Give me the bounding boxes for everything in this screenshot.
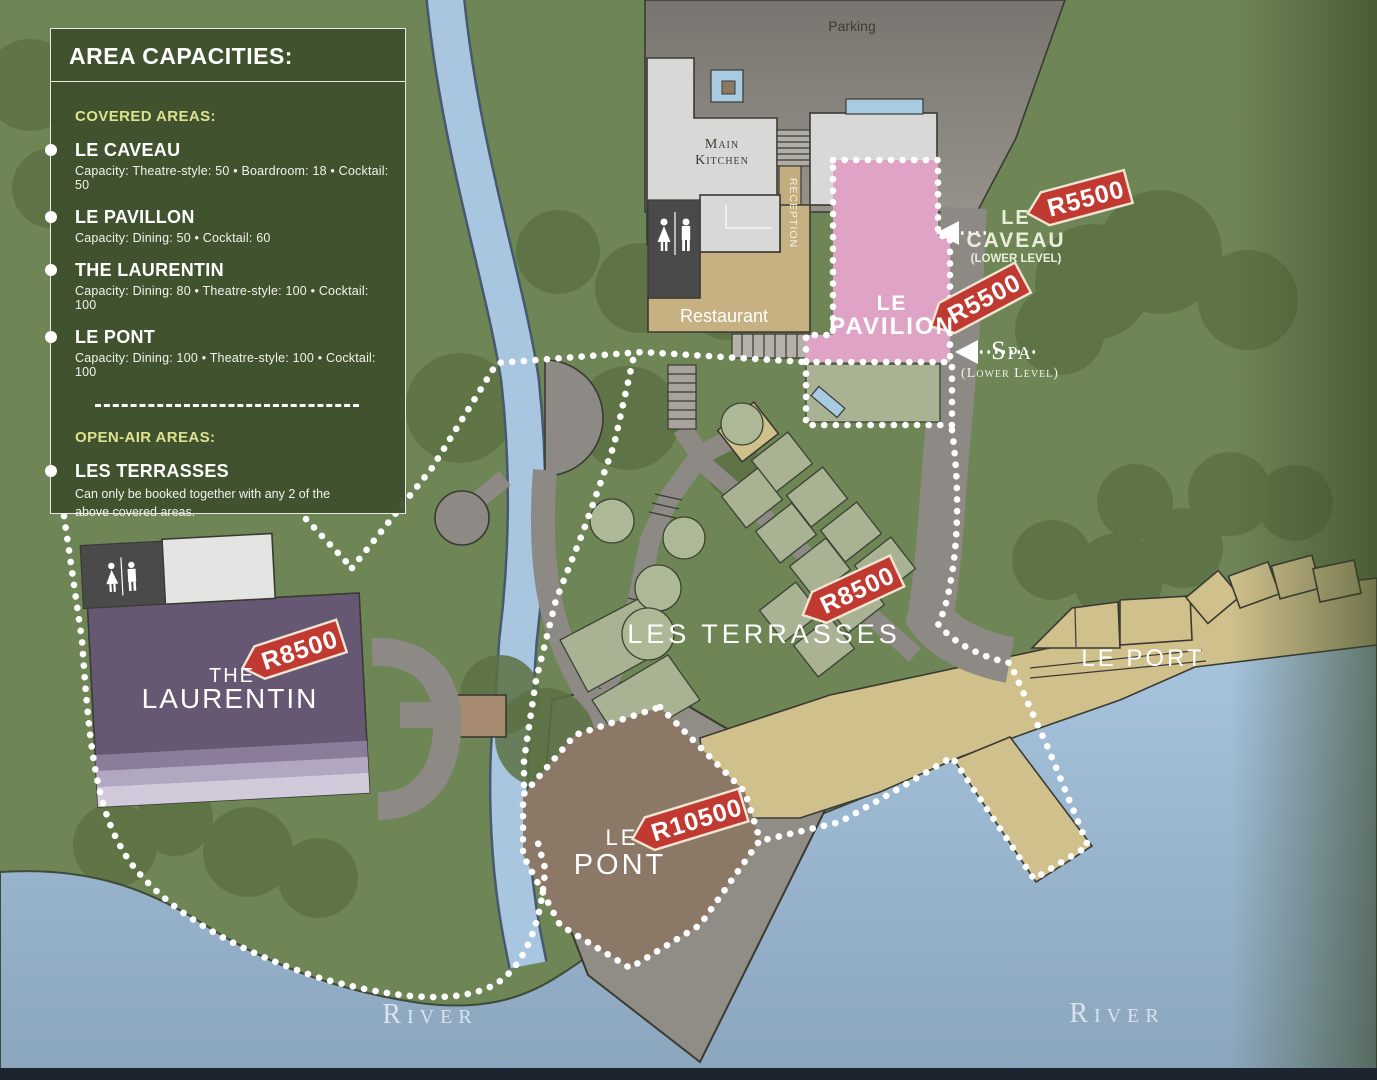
awning <box>846 99 923 114</box>
area-capacities-panel: AREA CAPACITIES: COVERED AREAS: LE CAVEA… <box>50 28 406 514</box>
bullet-icon <box>45 144 57 156</box>
restaurant-label: Restaurant <box>680 306 768 326</box>
restaurant-restrooms <box>648 200 700 298</box>
area-name: LE CAVEAU <box>75 140 389 161</box>
svg-text:LE: LE <box>606 825 639 850</box>
bullet-icon <box>45 264 57 276</box>
svg-text:Main: Main <box>705 137 739 152</box>
note-line-2: above covered areas. <box>75 503 389 521</box>
area-capacity: Capacity: Dining: 80 • Theatre-style: 10… <box>75 284 389 312</box>
svg-text:LAURENTIN: LAURENTIN <box>142 683 319 714</box>
legend-item-le-pavillon: LE PAVILLON Capacity: Dining: 50 • Cockt… <box>75 207 389 245</box>
legend-item-the-laurentin: THE LAURENTIN Capacity: Dining: 80 • The… <box>75 260 389 312</box>
svg-text:(Lower Level): (Lower Level) <box>961 366 1059 381</box>
note-line-1: Can only be booked together with any 2 o… <box>75 485 389 503</box>
legend-item-le-caveau: LE CAVEAU Capacity: Theatre-style: 50 • … <box>75 140 389 192</box>
svg-text:CAVEAU: CAVEAU <box>966 229 1065 252</box>
legend-item-le-pont: LE PONT Capacity: Dining: 100 • Theatre-… <box>75 327 389 379</box>
area-name: LE PONT <box>75 327 389 348</box>
les-terrasses-label: LES TERRASSES <box>627 619 901 649</box>
area-capacity: Capacity: Theatre-style: 50 • Boardroom:… <box>75 164 389 192</box>
svg-text:PONT: PONT <box>574 849 667 881</box>
svg-text:(LOWER LEVEL): (LOWER LEVEL) <box>971 253 1062 265</box>
river-label-right: River <box>1069 998 1164 1029</box>
bullet-icon <box>45 331 57 343</box>
area-name: LES TERRASSES <box>75 461 389 482</box>
port-hut <box>1120 596 1192 645</box>
parking-label: Parking <box>828 18 875 34</box>
svg-text:Spa: Spa <box>991 336 1033 365</box>
open-air-areas-heading: OPEN-AIR AREAS: <box>75 429 389 446</box>
reception-label: RECEPTION <box>787 178 799 248</box>
le-port-label: LE PORT <box>1081 645 1204 672</box>
bullet-icon <box>45 211 57 223</box>
area-note: Can only be booked together with any 2 o… <box>75 485 389 521</box>
panel-title: AREA CAPACITIES: <box>51 29 405 82</box>
area-capacity: Capacity: Dining: 50 • Cocktail: 60 <box>75 231 389 245</box>
map-bottom-border <box>0 1068 1377 1080</box>
svg-text:Kitchen: Kitchen <box>695 153 749 168</box>
svg-text:LE: LE <box>1001 207 1031 229</box>
area-name: THE LAURENTIN <box>75 260 389 281</box>
river-label-left: River <box>382 999 477 1030</box>
laurentin-annex <box>162 533 275 604</box>
laurentin-restrooms <box>80 541 165 608</box>
bullet-icon <box>45 465 57 477</box>
svg-text:PAVILION: PAVILION <box>829 313 955 340</box>
edge-shading <box>1230 0 1377 1080</box>
legend-item-les-terrasses: LES TERRASSES Can only be booked togethe… <box>75 461 389 521</box>
area-capacity: Capacity: Dining: 100 • Theatre-style: 1… <box>75 351 389 379</box>
area-name: LE PAVILLON <box>75 207 389 228</box>
covered-areas-heading: COVERED AREAS: <box>75 108 389 125</box>
dashed-divider <box>95 404 359 407</box>
svg-text:LE: LE <box>877 292 908 315</box>
